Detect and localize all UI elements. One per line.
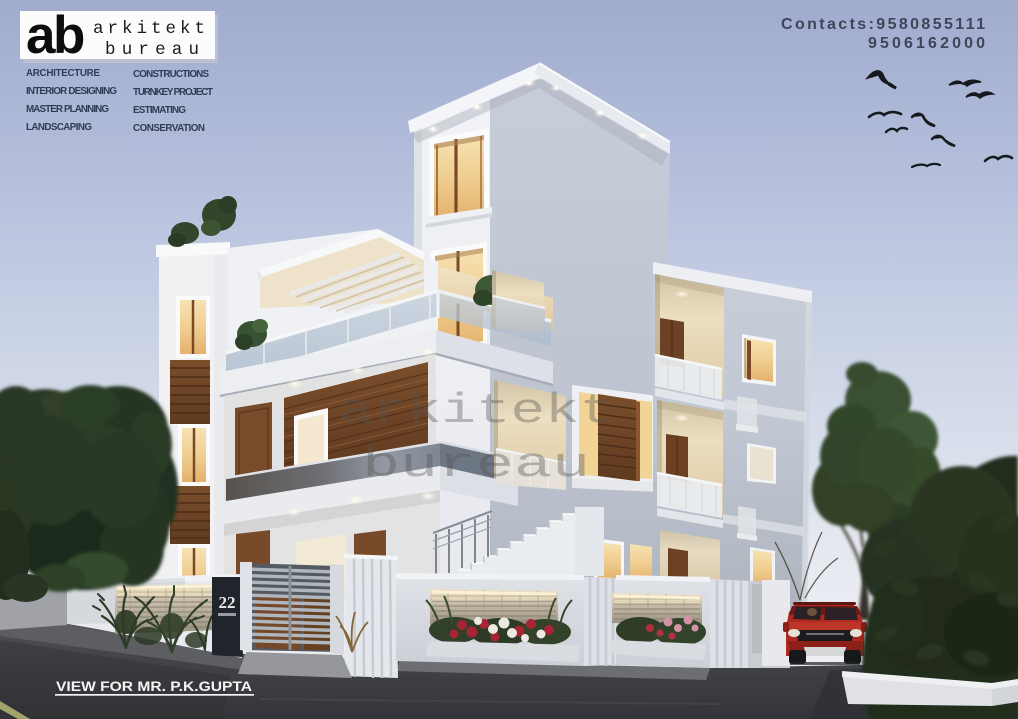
svg-text:LANDSCAPING: LANDSCAPING (26, 122, 92, 133)
svg-text:CONSTRUCTIONS: CONSTRUCTIONS (133, 69, 209, 80)
svg-text:22: 22 (219, 593, 236, 612)
svg-text:VIEW FOR MR. P.K.GUPTA: VIEW FOR MR. P.K.GUPTA (56, 679, 252, 694)
svg-text:INTERIOR DESIGNING: INTERIOR DESIGNING (26, 86, 117, 97)
svg-text:arkitekt: arkitekt (338, 387, 614, 435)
svg-text:MASTER PLANNING: MASTER PLANNING (26, 104, 109, 115)
svg-text:ab: ab (26, 6, 84, 65)
svg-text:ESTIMATING: ESTIMATING (133, 105, 186, 116)
svg-text:bureau: bureau (362, 441, 590, 489)
svg-text:Contacts:9580855111: Contacts:9580855111 (781, 16, 985, 33)
svg-text:CONSERVATION: CONSERVATION (133, 123, 205, 134)
svg-text:TURNKEY PROJECT: TURNKEY PROJECT (133, 87, 213, 98)
svg-text:ARCHITECTURE: ARCHITECTURE (26, 68, 100, 79)
